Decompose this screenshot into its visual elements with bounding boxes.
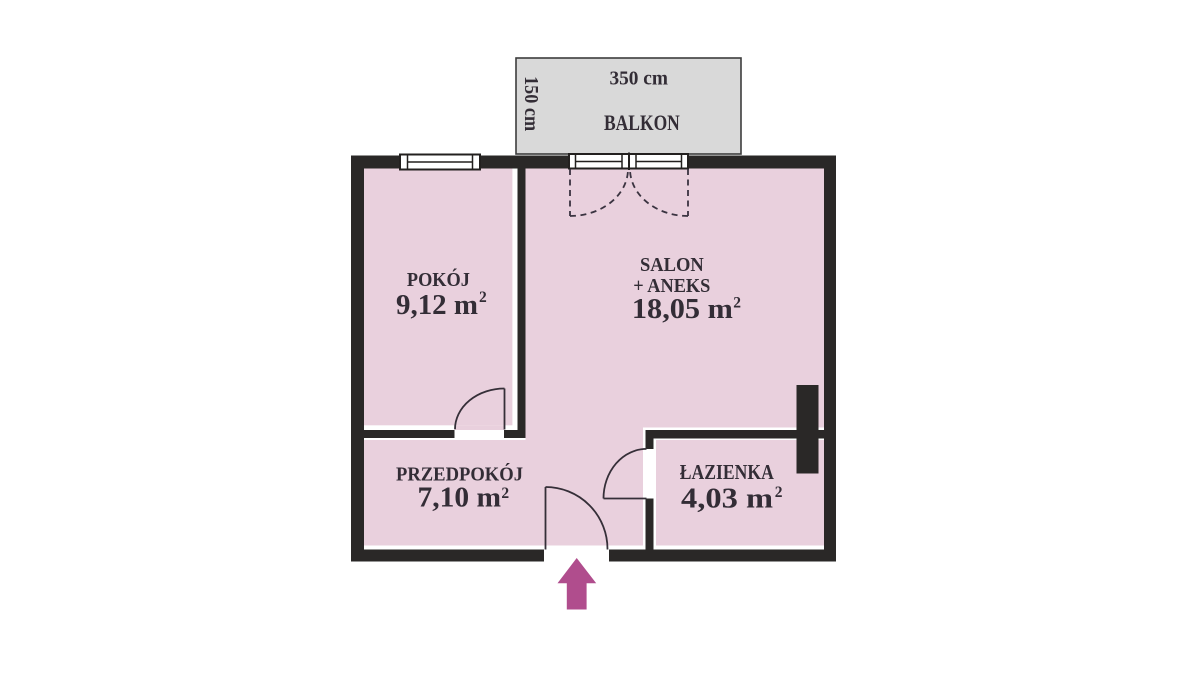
svg-text:BALKON: BALKON xyxy=(604,110,680,135)
svg-text:9,12 m: 9,12 m xyxy=(396,290,478,321)
svg-text:2: 2 xyxy=(501,485,509,502)
svg-text:150 cm: 150 cm xyxy=(520,76,541,131)
svg-text:2: 2 xyxy=(733,295,741,312)
svg-text:18,05 m: 18,05 m xyxy=(632,294,733,325)
svg-text:POKÓJ: POKÓJ xyxy=(407,267,470,291)
svg-text:4,03 m: 4,03 m xyxy=(681,484,773,515)
svg-text:ŁAZIENKA: ŁAZIENKA xyxy=(680,460,774,484)
svg-text:7,10 m: 7,10 m xyxy=(418,483,502,514)
svg-text:2: 2 xyxy=(479,289,487,306)
svg-text:SALON: SALON xyxy=(640,255,704,276)
svg-text:350 cm: 350 cm xyxy=(609,68,668,89)
svg-text:2: 2 xyxy=(775,484,783,501)
